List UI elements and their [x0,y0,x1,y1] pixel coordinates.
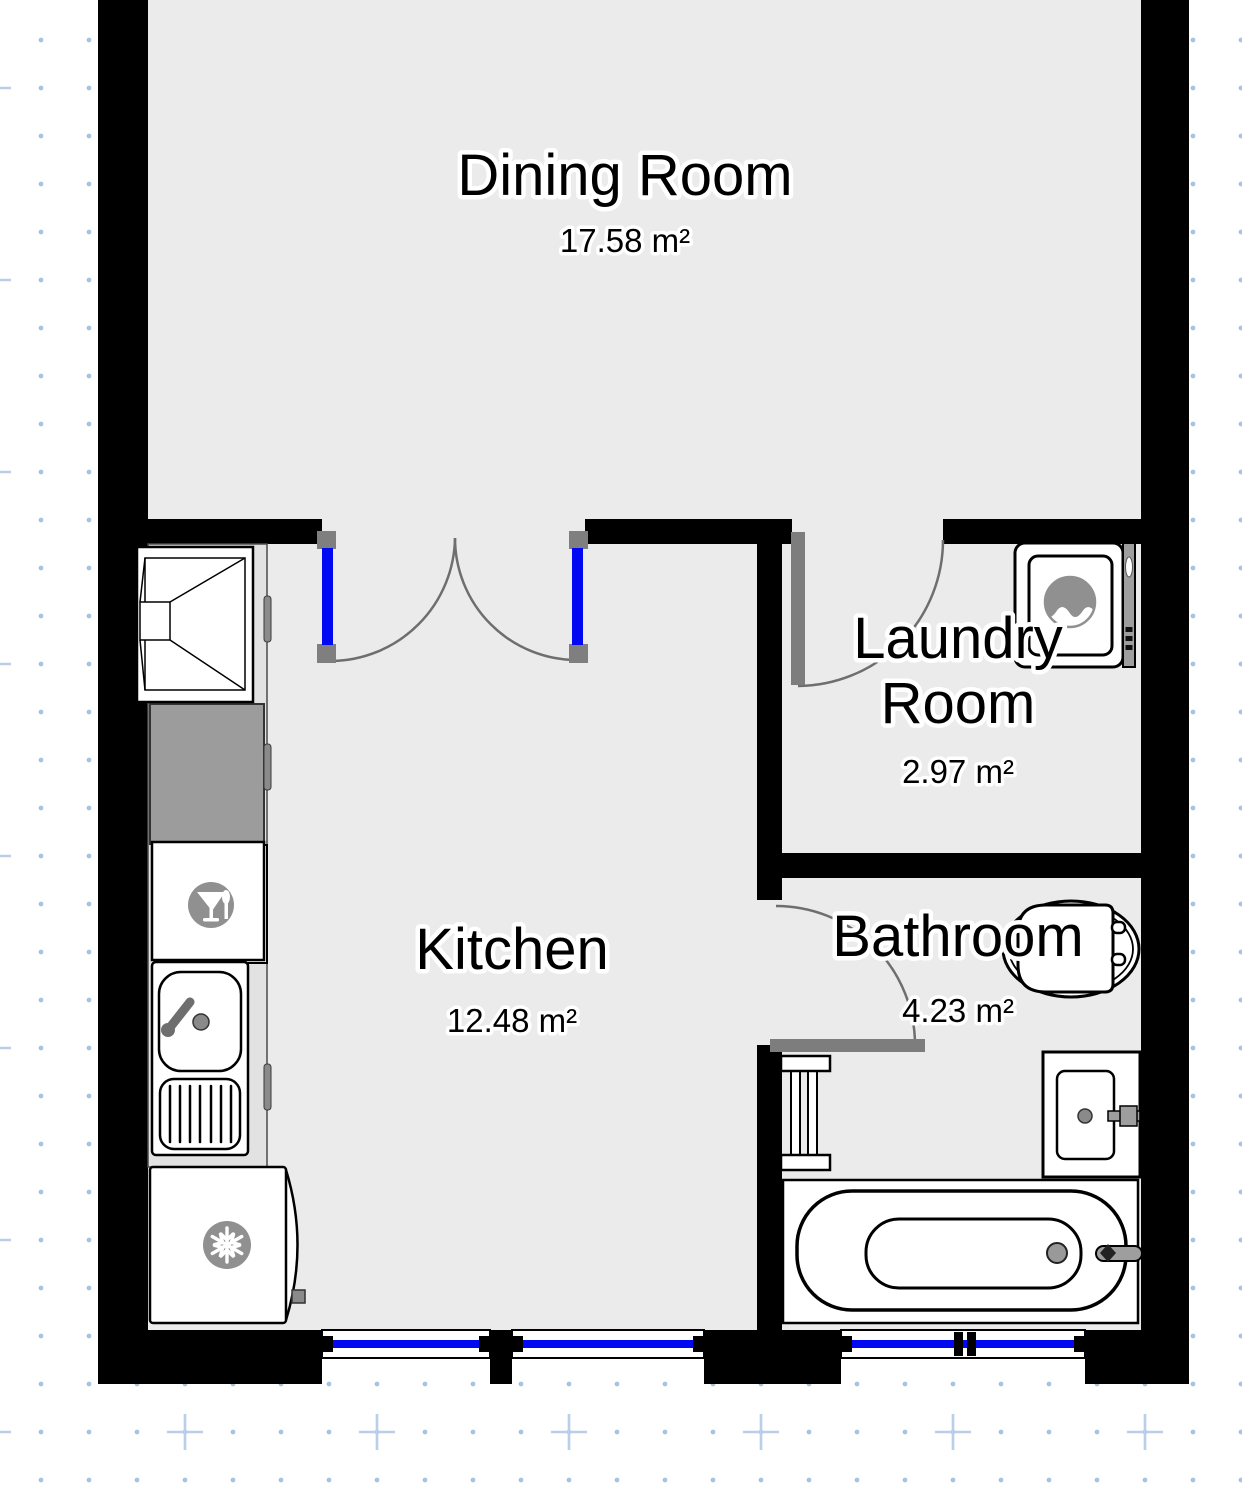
wall-bottom-segment[interactable] [704,1330,841,1384]
snowflake-icon [203,1221,251,1269]
windows-layer [322,1330,1085,1358]
basin-drain [1078,1109,1092,1123]
sink-drain [193,1014,209,1030]
window-glass [523,1340,693,1348]
fridge-hinge [292,1290,305,1303]
washer-control-panel [1123,543,1135,667]
kitchen-sink[interactable] [152,962,248,1155]
door-hinge [317,531,336,549]
washbasin[interactable] [1043,1052,1140,1177]
door-leaf [770,1039,925,1052]
bathroom-window[interactable] [841,1330,1085,1358]
wine-glass-icon [188,882,234,928]
kitchen-window-right[interactable] [512,1330,704,1358]
opening-dining-laundry [792,519,943,544]
wall-segment[interactable] [585,519,792,544]
kitchen-label: Kitchen [415,917,608,982]
laundry-room-label-line1: Laundry [853,606,1063,671]
wall-kitchen-bathroom-lower[interactable] [757,1045,782,1330]
dishwasher[interactable] [152,842,267,963]
window-mullion-mark [967,1332,976,1356]
tub-faucet [1096,1244,1142,1262]
door-hinge [569,531,588,549]
laundry-room-label-line2: Room [881,671,1036,736]
wall-segment[interactable] [943,519,1141,544]
toilet-hinge [1112,954,1125,965]
wall-right[interactable] [1141,0,1189,1384]
counter-dark-section[interactable] [150,704,264,844]
wall-bottom-corner[interactable] [1085,1330,1189,1384]
wall-kitchen-bathroom-upper[interactable] [757,544,782,900]
wall-segment[interactable] [148,519,322,544]
cabinet-handle [264,596,271,642]
sink-drainboard [160,1079,240,1149]
bathtub[interactable] [783,1180,1142,1323]
door-cap [569,644,588,663]
refrigerator[interactable] [150,1167,305,1323]
floor-plan-canvas: Dining Room 17.58 m² Laundry Room 2.97 m… [0,0,1242,1485]
dining-room-label: Dining Room [457,143,792,208]
extractor-hood[interactable] [137,547,253,702]
cabinet-handle [264,1064,271,1110]
wall-bottom-segment[interactable] [98,1330,322,1384]
tub-drain [1047,1243,1067,1263]
door-leaf [791,532,805,685]
cabinet-handle [264,744,271,790]
laundry-room-area: 2.97 m² [902,753,1014,790]
bathroom-label: Bathroom [832,904,1083,969]
toilet-hinge [1112,922,1125,933]
wall-bottom-pier[interactable] [490,1330,512,1384]
kitchen-window-left[interactable] [322,1330,490,1358]
door-cap [317,644,336,663]
bathroom-area: 4.23 m² [902,992,1014,1029]
dining-room-area: 17.58 m² [560,222,690,259]
dining-room-floor[interactable] [148,0,1141,519]
window-glass [333,1340,479,1348]
door-leaf [572,548,583,645]
window-mullion-mark [954,1332,963,1356]
opening-dining-kitchen [322,519,585,544]
kitchen-area: 12.48 m² [447,1002,577,1039]
opening-kitchen-bathroom [757,900,782,1045]
door-leaf [322,548,333,645]
wall-laundry-bathroom[interactable] [782,853,1141,878]
